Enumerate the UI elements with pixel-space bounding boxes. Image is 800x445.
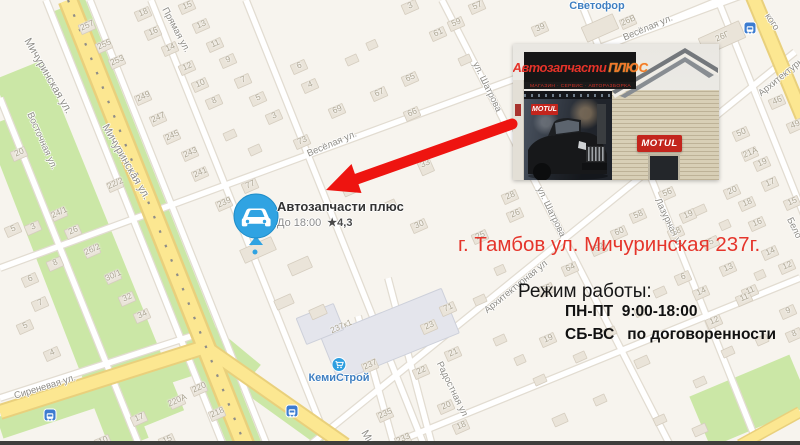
house-number-label: 8 (790, 327, 798, 338)
house-number-label: 21А (741, 144, 759, 159)
street-label: ул. Шатрова (534, 185, 568, 239)
house-number-label: 57 (471, 0, 484, 11)
storefront-sign: АвтозапчастиПЛЮС (524, 52, 636, 82)
house-number-label: 249 (134, 89, 151, 104)
house-number-label: 46 (771, 94, 784, 107)
house-number-label: 49 (789, 118, 800, 131)
house-number-label: 66 (406, 106, 419, 119)
house-number-label: 32 (121, 291, 134, 304)
bus-icon (287, 408, 298, 419)
street-label: Мичуринская ул. (22, 36, 75, 116)
house-number-label: 6 (295, 59, 303, 70)
house-number-label: 8 (210, 94, 218, 105)
storefront-photo: MOTUL АвтозапчастиПЛЮС МАГ (513, 44, 719, 180)
house-number-label: 71 (442, 301, 455, 314)
house-number-label: 9 (784, 304, 792, 315)
house-number-label: 22 (415, 364, 428, 377)
house-number-label: 12 (708, 314, 721, 327)
house-number-label: 11 (209, 37, 221, 50)
house-number-label: 14 (764, 245, 777, 258)
street-label: Мичуринская ул. (100, 122, 153, 202)
house-number-label: 30/1 (103, 267, 122, 283)
house-number-label: 257 (78, 18, 95, 33)
house-number-label: 20 (726, 184, 739, 197)
house-number-label: 61 (432, 26, 445, 39)
house-number-label: 5 (254, 91, 262, 102)
house-number-label: 50 (735, 126, 748, 139)
street-label: ул. Шатрова (470, 60, 504, 114)
house-number-label: 21 (447, 346, 460, 359)
bus-icon (745, 25, 756, 36)
house-number-label: 26 (509, 207, 522, 220)
house-number-label: 14 (164, 41, 177, 54)
house-number-label: 15 (786, 195, 799, 208)
schedule-weekend: СБ-ВС по договоренности (565, 326, 776, 344)
house-number-label: 253 (108, 53, 125, 68)
house-number-label: 18 (137, 6, 150, 19)
house-number-label: 235 (376, 406, 393, 421)
street-label: Бело (784, 216, 800, 241)
street-label: Радостная ул (434, 360, 470, 418)
house-number-label: 69 (331, 103, 344, 116)
street-label: Восточная ул. (24, 111, 59, 172)
house-number-label: 13 (195, 18, 208, 31)
house-number-label: 77 (244, 178, 257, 191)
cart-icon (332, 357, 347, 372)
store-hours: До 18:00 (277, 217, 321, 229)
house-number-label: 220 (190, 380, 207, 395)
street-label: Сиреневая ул. (13, 372, 77, 401)
house-number-label: 18 (455, 419, 468, 432)
house-number-label: 12 (181, 60, 194, 73)
schedule-heading: Режим работы: (518, 281, 652, 303)
photo-small-red-sign (515, 104, 521, 116)
house-number-label: 13 (722, 261, 735, 274)
house-number-label: 20 (440, 399, 453, 412)
house-number-label: 3 (29, 220, 37, 231)
house-number-label: 17 (764, 176, 777, 189)
house-number-label: 9 (224, 53, 232, 64)
poi-svetofor[interactable]: Светофор (569, 0, 624, 12)
street-label: Весёлая ул. (305, 129, 358, 160)
motul-sign-wall: MOTUL (637, 135, 682, 152)
house-number-label: 20 (13, 146, 26, 159)
transit-stop-icon[interactable] (745, 23, 756, 34)
storefront-sign-subtitle: МАГАЗИН · СЕРВИС · АВТОРАЗБОРКА (524, 82, 636, 89)
house-number-label: 30 (413, 218, 426, 231)
transit-stop-icon[interactable] (287, 406, 298, 417)
house-number-label: 5 (21, 319, 29, 330)
house-number-label: 19 (542, 332, 555, 345)
photo-door (648, 154, 680, 180)
house-number-label: 22/2 (105, 175, 124, 191)
store-rating: ★4,3 (327, 216, 352, 229)
photo-window (597, 104, 606, 144)
house-number-label: 5 (9, 222, 17, 233)
house-number-label: 17 (133, 411, 146, 424)
house-number-label: 19 (682, 208, 695, 221)
house-number-label: 19 (756, 156, 769, 169)
house-number-label: 14 (695, 285, 708, 298)
house-number-label: 243 (181, 145, 198, 160)
address-text: г. Тамбов ул. Мичуринская 237г. (458, 233, 760, 257)
house-number-label: 6 (679, 270, 687, 281)
house-number-label: 26В (619, 12, 637, 27)
house-number-label: 34 (136, 308, 149, 321)
poi-kemistroy[interactable]: КемиСтрой (308, 357, 369, 384)
house-number-label: 65 (404, 71, 417, 84)
house-number-label: 12 (781, 259, 794, 272)
house-number-label: 26Г (714, 29, 731, 44)
poi-label: КемиСтрой (308, 372, 369, 384)
store-marker-pin (230, 192, 282, 258)
store-marker-label[interactable]: Автозапчасти плюс До 18:00 ★4,3 (277, 199, 404, 229)
house-number-label: 241 (191, 165, 208, 180)
house-number-label: 28 (504, 189, 517, 202)
house-number-label: 59 (450, 16, 463, 29)
house-number-label: 245 (163, 128, 180, 143)
house-number-label: 16 (147, 25, 160, 38)
house-number-label: 67 (373, 86, 386, 99)
street-label: кого (762, 11, 781, 32)
bus-icon (45, 412, 56, 423)
house-number-label: 39 (534, 21, 547, 34)
house-number-label: 4 (48, 346, 56, 357)
marker-anchor-dot (253, 250, 258, 255)
house-number-label: 26 (67, 224, 80, 237)
house-number-label: 218 (208, 405, 225, 420)
house-number-label: 4 (306, 78, 314, 89)
house-number-label: 237к1 (329, 317, 354, 335)
house-number-label: 220А (166, 391, 188, 408)
house-number-label: 24/1 (49, 204, 68, 220)
poi-label: Светофор (569, 0, 624, 12)
bottom-dark-strip (0, 441, 800, 445)
house-number-label: 8 (51, 256, 59, 267)
store-title[interactable]: Автозапчасти плюс (277, 199, 404, 214)
star-icon: ★ (327, 217, 337, 229)
house-number-label: 26/2 (82, 241, 101, 257)
house-number-label: 15 (181, 0, 194, 11)
house-number-label: 33 (419, 157, 432, 170)
house-number-label: 16 (751, 216, 764, 229)
house-number-label: 64 (564, 261, 577, 274)
house-number-label: 23 (423, 319, 436, 332)
house-number-label: 6 (26, 272, 34, 283)
map-canvas[interactable]: Мичуринская ул.Мичуринская ул.Мичуринска… (0, 0, 800, 445)
street-label: Архитектурная ул (756, 41, 800, 99)
house-number-label: 247 (149, 110, 166, 125)
house-number-label: 10 (194, 77, 207, 90)
transit-stop-icon[interactable] (45, 410, 56, 421)
house-number-label: 58 (632, 208, 645, 221)
house-number-label: 7 (36, 296, 44, 307)
house-number-label: 73 (296, 134, 309, 147)
store-marker[interactable] (230, 192, 282, 258)
house-number-label: 255 (95, 37, 112, 52)
schedule-weekdays: ПН-ПТ 9:00-18:00 (565, 303, 698, 321)
house-number-label: 3 (406, 0, 414, 11)
house-number-label: 18 (741, 196, 754, 209)
house-number-label: 3 (270, 109, 278, 120)
house-number-label: 7 (239, 73, 247, 84)
